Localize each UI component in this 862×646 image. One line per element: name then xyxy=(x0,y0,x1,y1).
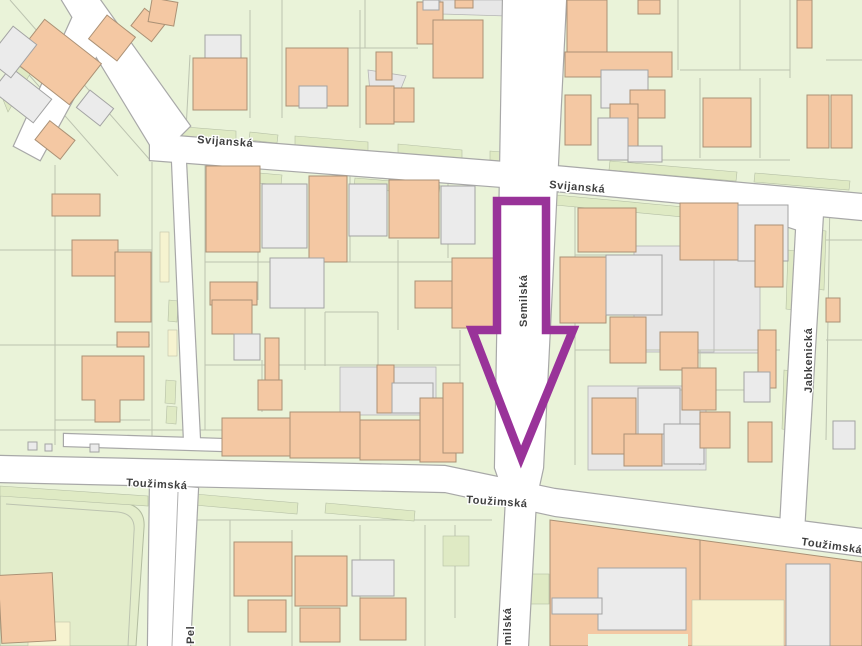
building xyxy=(703,98,751,147)
building xyxy=(797,0,812,48)
building xyxy=(831,95,852,148)
building xyxy=(578,208,636,252)
building xyxy=(360,598,406,640)
building xyxy=(598,568,686,630)
building xyxy=(560,257,606,323)
map-canvas[interactable]: Svijanská Svijanská Semilská Semilská To… xyxy=(0,0,862,646)
building xyxy=(680,203,738,260)
building xyxy=(300,608,340,642)
building xyxy=(833,421,855,449)
building xyxy=(433,20,483,78)
building xyxy=(376,52,392,80)
building xyxy=(193,58,247,110)
building xyxy=(682,368,716,410)
building xyxy=(222,418,290,456)
building xyxy=(28,442,37,450)
building xyxy=(567,0,607,56)
building xyxy=(0,573,56,644)
building xyxy=(115,252,151,322)
building xyxy=(262,184,307,248)
building xyxy=(443,383,463,453)
building xyxy=(598,118,628,160)
parcel xyxy=(692,600,784,646)
building xyxy=(638,0,660,14)
building xyxy=(755,225,783,287)
building xyxy=(624,434,662,466)
building xyxy=(206,166,260,252)
building xyxy=(212,300,252,334)
building xyxy=(360,420,420,460)
parcel xyxy=(588,634,688,646)
building xyxy=(234,542,292,596)
building xyxy=(72,240,118,276)
building xyxy=(455,0,473,8)
building xyxy=(700,412,730,448)
building xyxy=(52,194,100,216)
building xyxy=(744,372,770,402)
building xyxy=(349,184,387,236)
building xyxy=(258,380,282,410)
building xyxy=(299,86,327,108)
building xyxy=(352,560,394,596)
building xyxy=(270,258,324,308)
building xyxy=(90,444,99,452)
building xyxy=(366,86,394,124)
building xyxy=(441,186,475,244)
building xyxy=(295,556,347,606)
building xyxy=(786,564,830,646)
building xyxy=(394,88,414,122)
building xyxy=(234,334,260,360)
building xyxy=(826,298,840,322)
map-viewport[interactable]: Svijanská Svijanská Semilská Semilská To… xyxy=(0,0,862,646)
building xyxy=(565,95,591,145)
building xyxy=(248,600,286,632)
building xyxy=(628,146,662,162)
building xyxy=(452,258,496,328)
building xyxy=(423,0,439,10)
building xyxy=(389,180,439,238)
building xyxy=(610,317,646,363)
building xyxy=(807,95,829,148)
building xyxy=(552,598,602,614)
building xyxy=(290,412,360,458)
building xyxy=(660,332,698,370)
building xyxy=(748,422,772,462)
building xyxy=(117,332,149,347)
building xyxy=(45,444,52,451)
building xyxy=(148,0,178,26)
building xyxy=(377,365,394,413)
building xyxy=(606,255,662,315)
building xyxy=(309,176,347,262)
building xyxy=(664,424,704,464)
building xyxy=(265,338,279,380)
